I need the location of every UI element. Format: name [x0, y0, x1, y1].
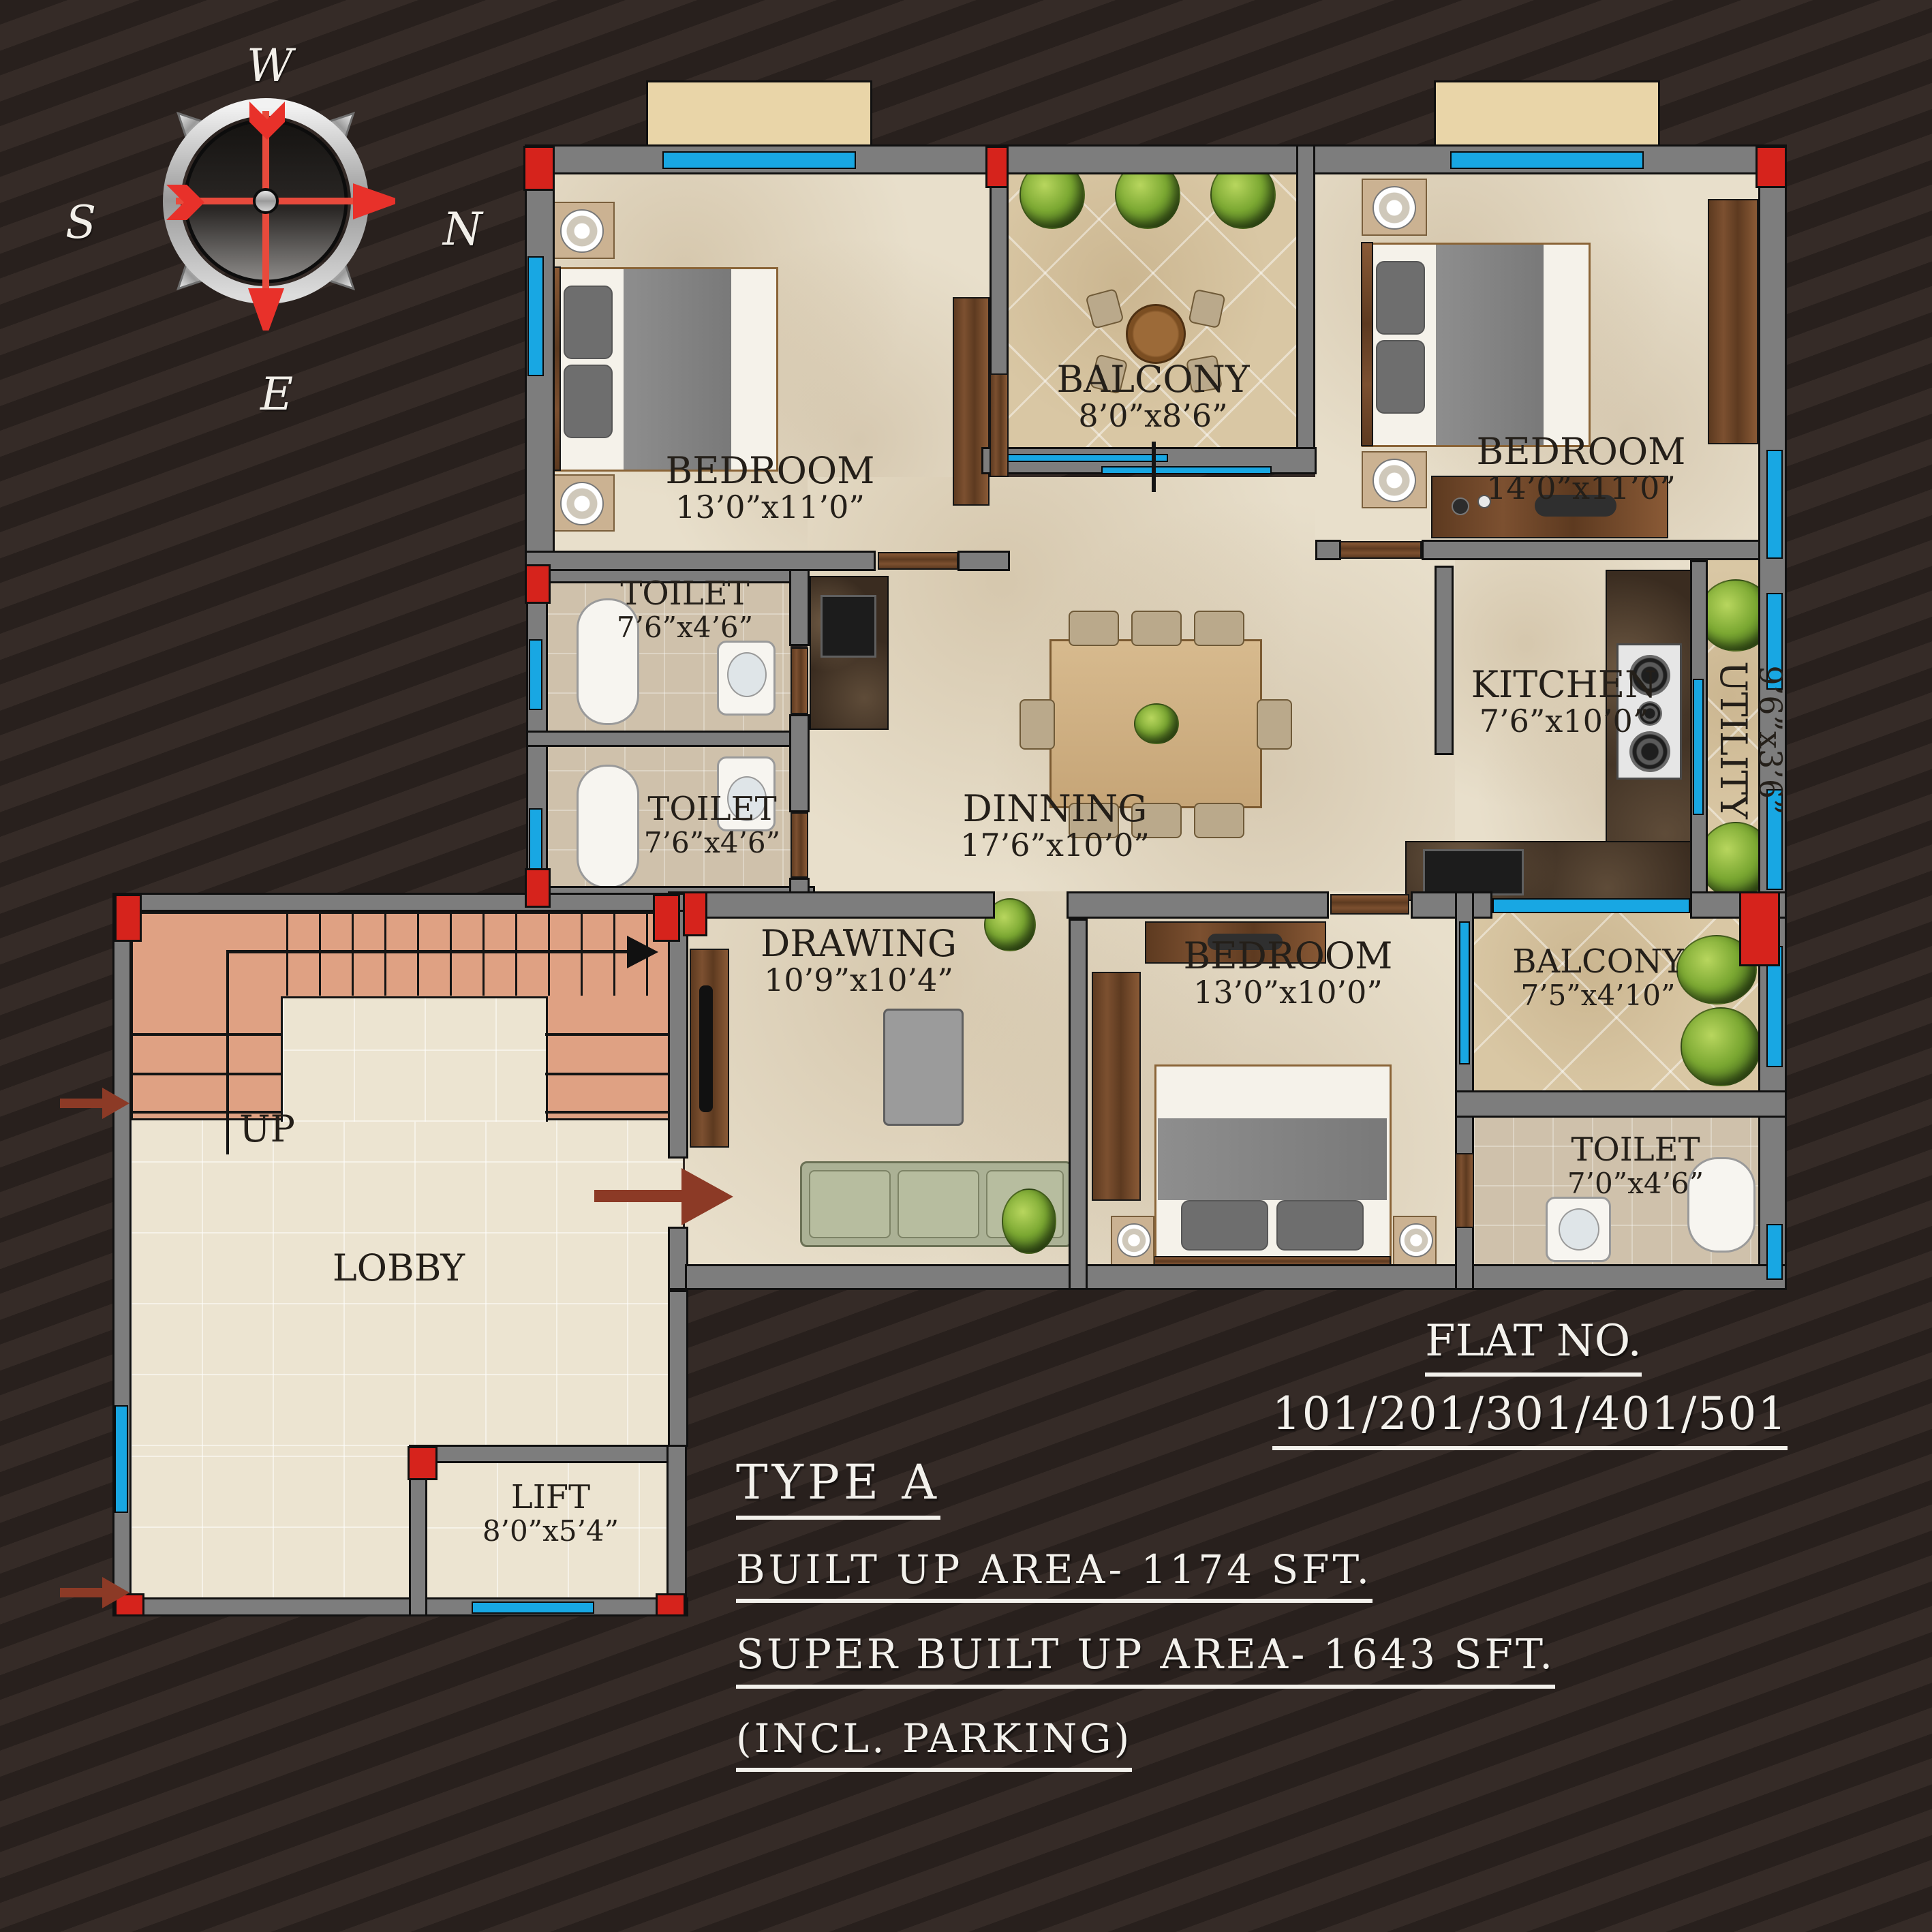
stairs-up: UP [219, 1109, 315, 1149]
pillow [1376, 340, 1425, 414]
lamp [1399, 1223, 1433, 1257]
window [114, 1405, 128, 1513]
parking-text: (INCL. PARKING) [736, 1719, 1132, 1772]
window [527, 256, 544, 376]
door [990, 373, 1009, 477]
bedroom3-label: BEDROOM 13’0”x10’0” [1138, 936, 1438, 1010]
wash-counter [810, 576, 889, 730]
door [1340, 541, 1422, 559]
compass-rose [136, 72, 395, 331]
room-dims: 10’9”x10’4” [722, 964, 995, 998]
type-label: TYPE A [736, 1458, 940, 1520]
room-name: LOBBY [300, 1248, 497, 1288]
nightstand [1362, 179, 1427, 236]
room-name: UTILITY [1713, 617, 1753, 863]
wall [526, 731, 808, 747]
column [656, 1593, 686, 1616]
lamp [560, 482, 604, 525]
stair-tread [482, 914, 485, 996]
bedroom1-label: BEDROOM 13’0”x11’0” [600, 451, 940, 525]
lamp [1117, 1223, 1151, 1257]
room-dims: 8’0”x5’4” [455, 1516, 646, 1546]
dining-chair [1194, 611, 1244, 646]
stair-tread [417, 914, 419, 996]
dining-chair [1257, 699, 1292, 750]
window-sill [1434, 80, 1660, 147]
nightstand [549, 202, 615, 259]
stair-tread [581, 914, 583, 996]
wall [112, 893, 688, 912]
sofa-cushion [809, 1170, 891, 1238]
room-name: BALCONY [1034, 360, 1272, 399]
stair-tread [319, 914, 321, 996]
window [1459, 921, 1470, 1064]
wall [685, 1264, 1787, 1290]
room-name: BEDROOM [600, 451, 940, 491]
stair-tread [286, 914, 288, 996]
entrance-arrow [594, 1190, 683, 1202]
stair-tread [384, 914, 386, 996]
balcony2-label: BALCONY 7’5”x4’10” [1486, 945, 1711, 1011]
parking-note: (INCL. PARKING) [736, 1719, 1132, 1772]
toilet2-label: TOILET 7’6”x4’6” [607, 792, 818, 858]
room-name: TOILET [607, 792, 818, 827]
column [1755, 146, 1787, 188]
pillow [1376, 261, 1425, 335]
door [1330, 894, 1409, 915]
window [472, 1601, 594, 1614]
compass-west-label: W [247, 40, 293, 92]
nightstand [1393, 1216, 1437, 1266]
plant [1134, 703, 1179, 744]
column [114, 894, 142, 942]
stair-tread [548, 914, 550, 996]
compass-east-label: E [260, 368, 293, 420]
wall [789, 566, 810, 646]
wall [1422, 540, 1787, 560]
lobby-label: LOBBY [300, 1248, 497, 1288]
dinning-label: DINNING 17’6”x10’0” [932, 789, 1178, 863]
wash-basin [717, 641, 776, 716]
flat-numbers-text: 101/201/301/401/501 [1272, 1392, 1788, 1450]
bed [1362, 243, 1591, 447]
bedroom2-label: BEDROOM 14’0”x11’0” [1431, 432, 1731, 506]
wall [1067, 891, 1329, 919]
toilet3-label: TOILET 7’0”x4’6” [1527, 1133, 1745, 1199]
room-dims: 13’0”x11’0” [600, 491, 940, 525]
flat-numbers: 101/201/301/401/501 [1271, 1392, 1789, 1450]
compass-south-label: S [65, 196, 96, 249]
type-text: TYPE A [736, 1458, 940, 1520]
door [878, 552, 958, 570]
stair-direction-line [228, 950, 630, 953]
blanket [1158, 1118, 1387, 1200]
room-name: KITCHEN [1448, 665, 1680, 705]
dresser [953, 297, 990, 506]
room-name: BEDROOM [1138, 936, 1438, 976]
blanket [1436, 245, 1544, 445]
lamp [1373, 186, 1416, 230]
pillow [1276, 1200, 1364, 1251]
stair-tread [131, 1073, 281, 1075]
column [653, 894, 680, 942]
window [1492, 898, 1690, 913]
window-tick [1152, 442, 1156, 492]
bed [1154, 1064, 1392, 1266]
wall [957, 551, 1010, 571]
wall [409, 1445, 685, 1463]
window-sill [646, 80, 872, 147]
basin-bowl [1559, 1208, 1599, 1251]
nightstand [1362, 451, 1427, 508]
room-name: DRAWING [722, 924, 995, 964]
built-up-area: BUILT UP AREA- 1174 SFT. [736, 1550, 1373, 1603]
stair-tread [450, 914, 452, 996]
wall [525, 551, 876, 571]
column [985, 146, 1009, 188]
utility-label: 9’6”x3’6” UTILITY [1691, 617, 1787, 863]
lamp [560, 209, 604, 253]
super-built-up-area: SUPER BUILT UP AREA- 1643 SFT. [736, 1634, 1555, 1689]
lift-label: LIFT 8’0”x5’4” [455, 1480, 646, 1546]
compass-north-label: N [443, 203, 482, 256]
door-marker-head [102, 1577, 129, 1608]
stair-tread [613, 914, 615, 996]
wall [1069, 919, 1088, 1290]
room-name: TOILET [1527, 1133, 1745, 1168]
lobby-floor [131, 1446, 410, 1599]
wall [666, 1445, 687, 1616]
stair-tread [131, 1033, 281, 1036]
wash-basin [821, 595, 876, 658]
column [525, 564, 551, 604]
stair-tread [515, 914, 517, 996]
window [1766, 450, 1783, 559]
column [525, 868, 551, 908]
wall [1296, 144, 1315, 465]
round-table [1126, 304, 1186, 364]
stair-tread [352, 914, 354, 996]
dining-chair [1194, 803, 1244, 838]
balcony1-label: BALCONY 8’0”x8’6” [1034, 360, 1272, 433]
window [1101, 466, 1272, 474]
window [1766, 1224, 1783, 1280]
wall [1455, 1090, 1787, 1118]
basin-bowl [727, 652, 767, 697]
armchair [883, 1009, 964, 1126]
tv [699, 985, 713, 1112]
plant [1002, 1189, 1056, 1254]
wall [1315, 540, 1341, 560]
window [662, 151, 856, 169]
bed [549, 267, 778, 472]
wash-basin [1546, 1197, 1611, 1262]
room-name: DINNING [932, 789, 1178, 829]
dining-chair [1019, 699, 1055, 750]
room-dims: 7’0”x4’6” [1527, 1168, 1745, 1199]
room-dims: 7’6”x10’0” [1448, 705, 1680, 739]
door [791, 647, 808, 714]
pillow [564, 365, 613, 438]
dining-chair [1131, 611, 1182, 646]
wall [685, 891, 995, 919]
column [683, 891, 707, 936]
door-marker-head [102, 1088, 129, 1119]
sofa-cushion [898, 1170, 979, 1238]
pillow [564, 286, 613, 359]
drawing-label: DRAWING 10’9”x10’4” [722, 924, 995, 998]
wall [1411, 891, 1492, 919]
kitchen-label: KITCHEN 7’6”x10’0” [1448, 665, 1680, 739]
pillow [1181, 1200, 1268, 1251]
kitchen-sink [1423, 849, 1524, 895]
flat-no-text: FLAT NO. [1425, 1319, 1642, 1377]
room-name: TOILET [579, 577, 791, 612]
lamp [1373, 459, 1416, 502]
toilet1-label: TOILET 7’6”x4’6” [579, 577, 791, 643]
room-dims: 8’0”x8’6” [1034, 399, 1272, 433]
floor-plan-canvas: W S N E [0, 0, 1932, 1932]
room-dims: 7’6”x4’6” [607, 827, 818, 858]
room-name: BEDROOM [1431, 432, 1731, 472]
column [408, 1446, 438, 1480]
headboard [1361, 242, 1373, 446]
room-dims: 7’5”x4’10” [1486, 980, 1711, 1011]
room-dims: 7’6”x4’6” [579, 612, 791, 643]
built-up-text: BUILT UP AREA- 1174 SFT. [736, 1550, 1373, 1603]
plant [1681, 1007, 1761, 1086]
room-dims: 17’6”x10’0” [932, 829, 1178, 863]
stair-tread [545, 1073, 683, 1075]
window [1450, 151, 1644, 169]
stair-tread [545, 1033, 683, 1036]
wardrobe [1092, 972, 1141, 1201]
flat-no-title: FLAT NO. [1288, 1319, 1779, 1377]
room-name: BALCONY [1486, 945, 1711, 980]
up-label: UP [219, 1109, 315, 1149]
wall [668, 1290, 688, 1447]
wall [112, 1597, 688, 1616]
stair-landing-floor [281, 996, 548, 1122]
column [1739, 891, 1780, 966]
stair-tread [545, 1111, 683, 1114]
column [523, 146, 555, 191]
room-dims: 13’0”x10’0” [1138, 976, 1438, 1010]
wardrobe [1708, 199, 1758, 444]
entrance-arrow-head [681, 1168, 733, 1225]
room-dims: 9’6”x3’6” [1753, 617, 1787, 863]
room-name: LIFT [455, 1480, 646, 1516]
super-built-up-text: SUPER BUILT UP AREA- 1643 SFT. [736, 1634, 1555, 1689]
nightstand [1111, 1216, 1154, 1266]
window [1002, 454, 1168, 462]
window [529, 639, 542, 710]
room-dims: 14’0”x11’0” [1431, 472, 1731, 506]
blanket [624, 269, 731, 470]
dining-chair [1069, 611, 1119, 646]
door [1455, 1153, 1474, 1228]
